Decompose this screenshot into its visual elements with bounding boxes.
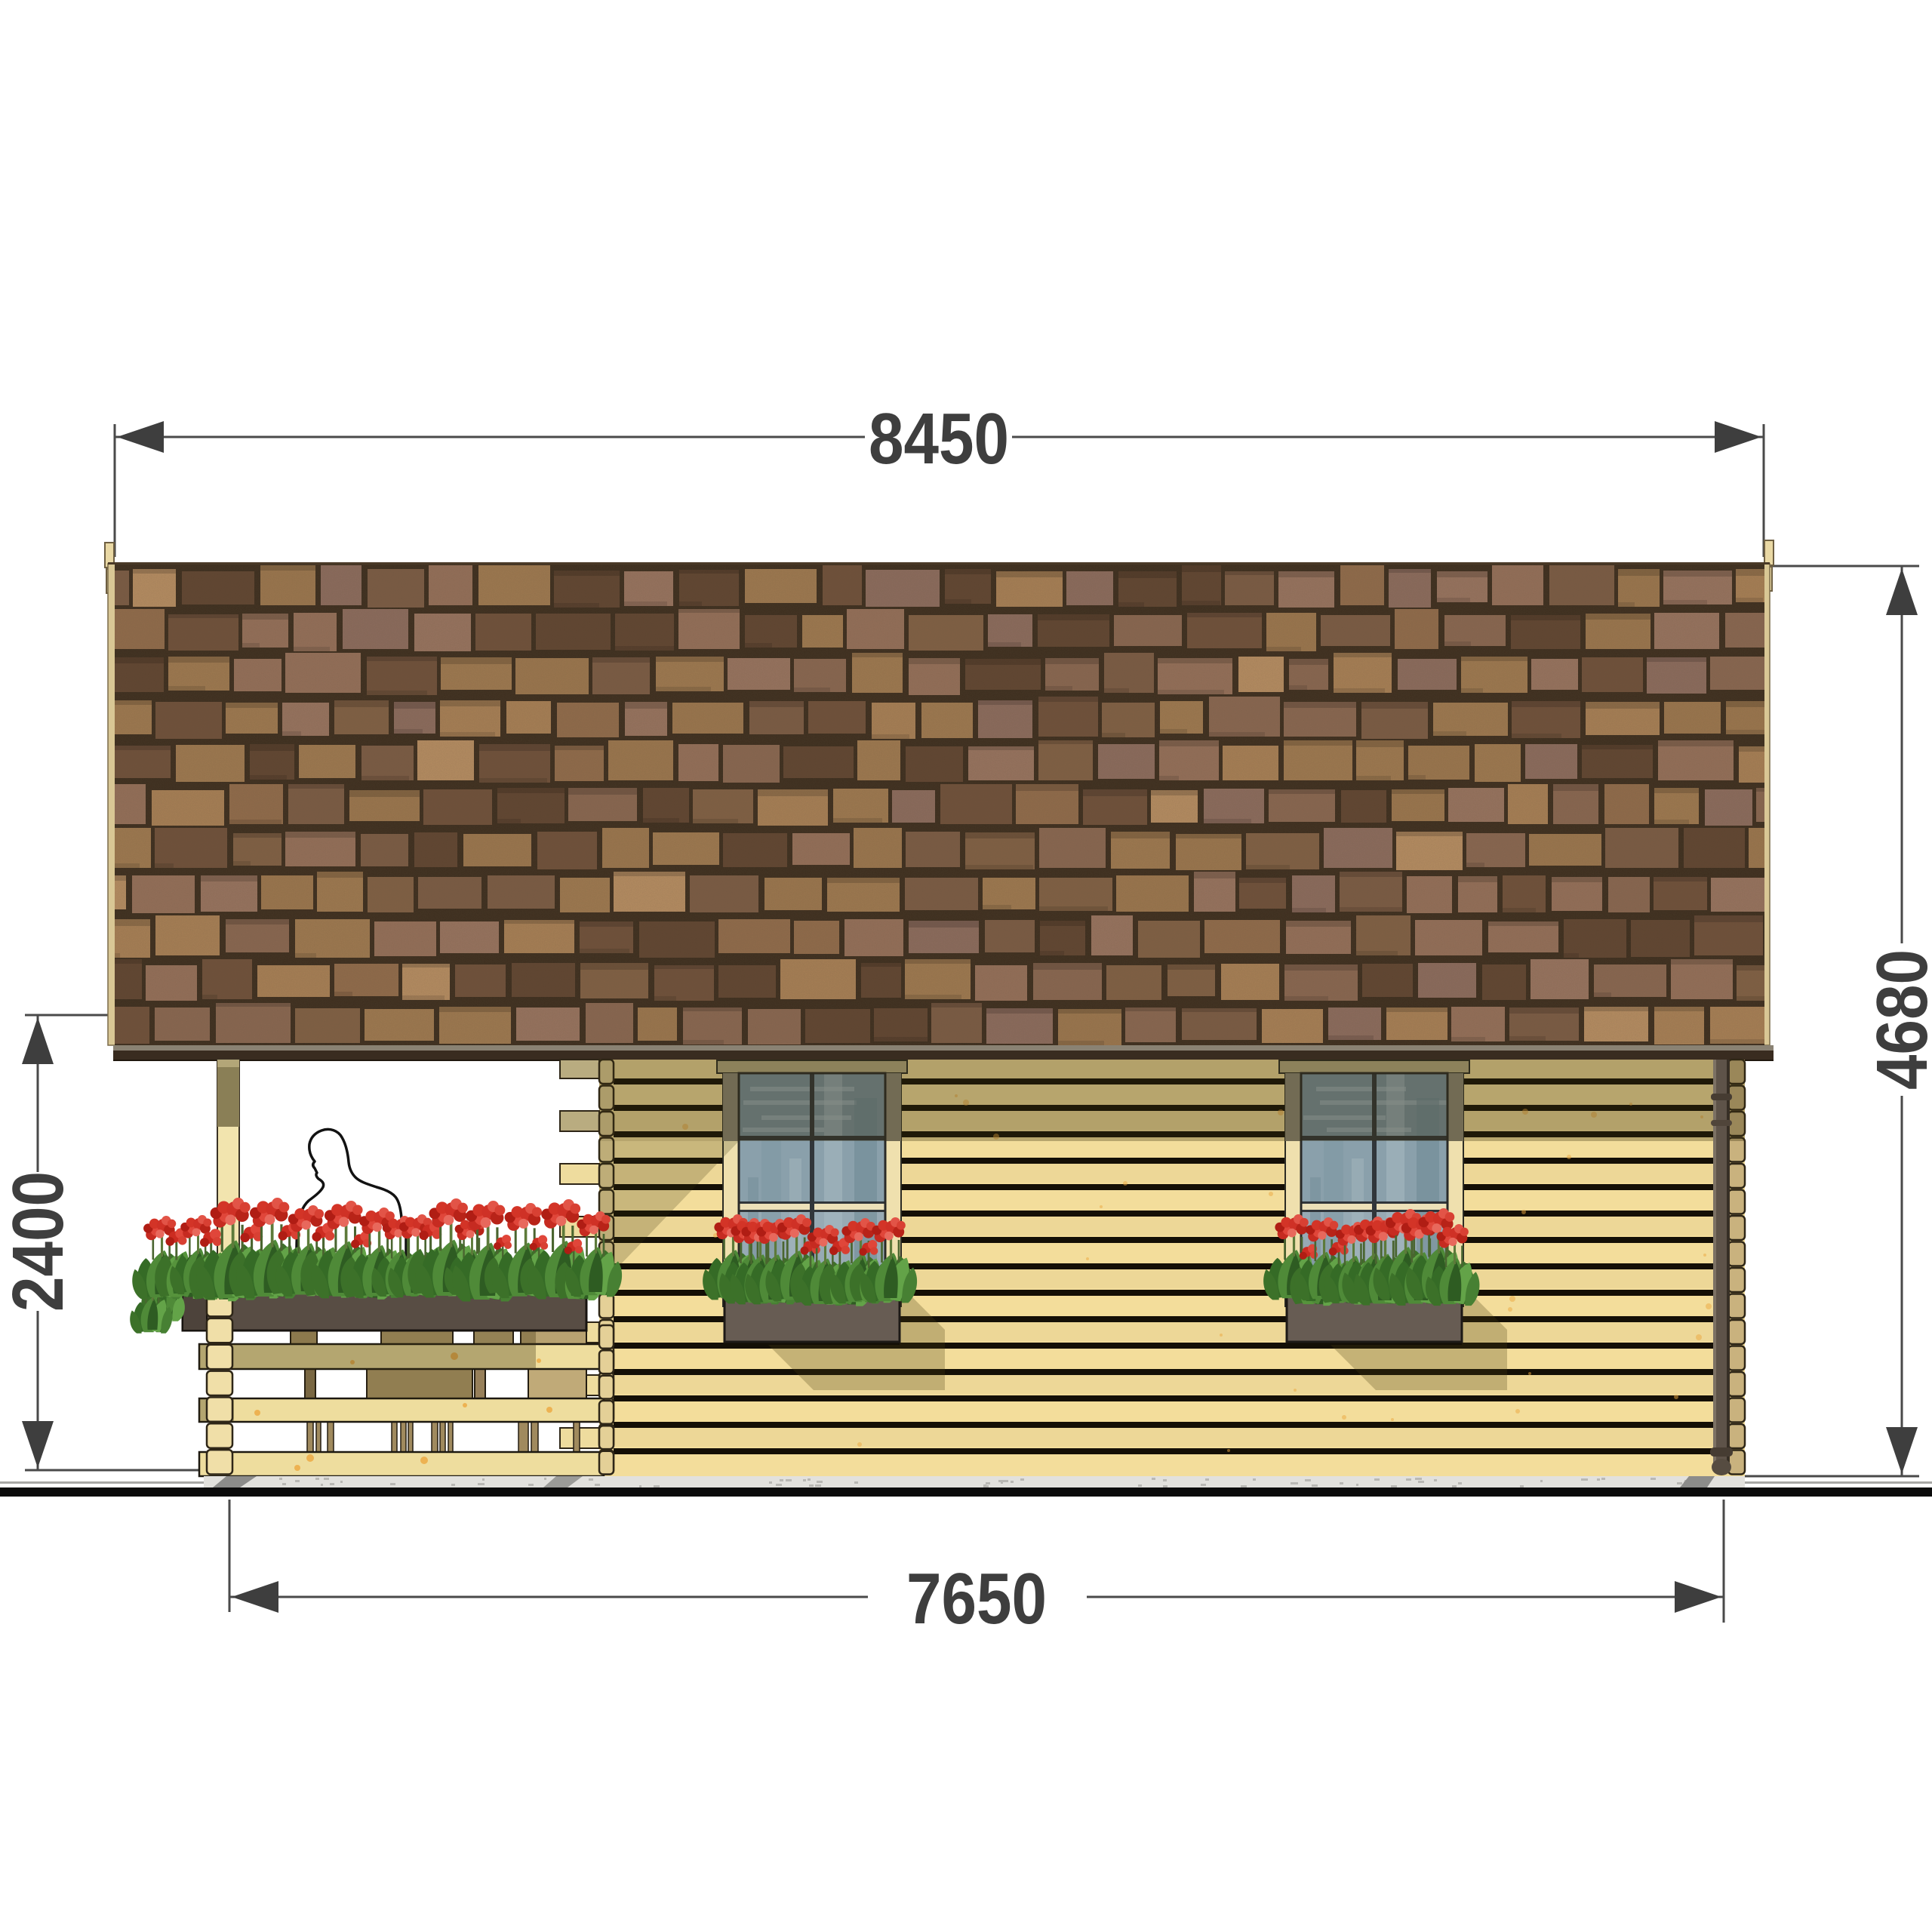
- svg-text:8450: 8450: [869, 398, 1009, 479]
- svg-text:2400: 2400: [0, 1171, 78, 1312]
- svg-text:4680: 4680: [1862, 949, 1932, 1090]
- svg-text:7650: 7650: [906, 1558, 1047, 1639]
